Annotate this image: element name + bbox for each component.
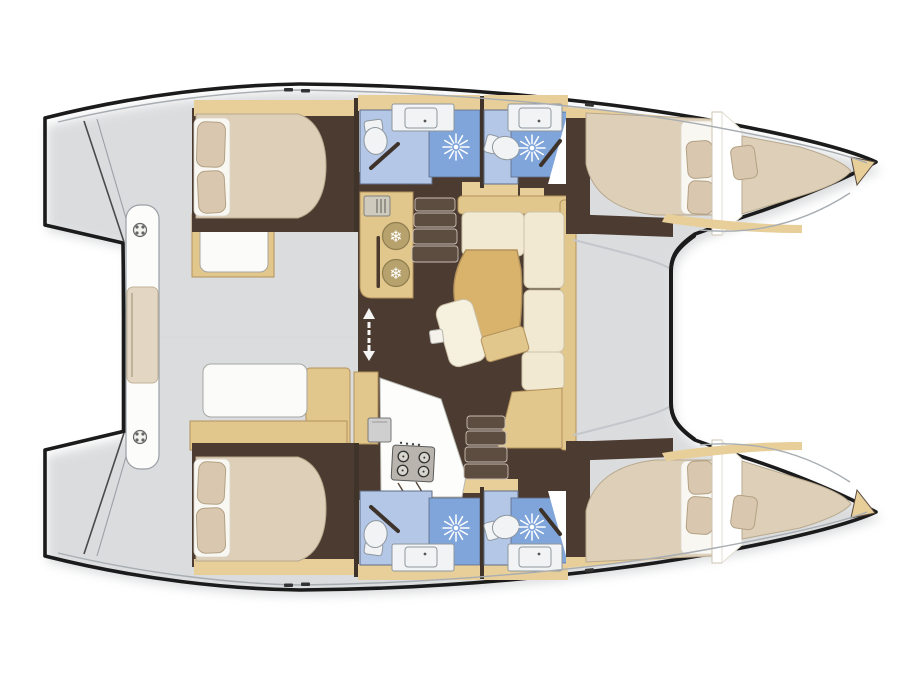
stove-icon (391, 441, 435, 482)
salon: ❄ ❄ (354, 172, 576, 500)
snowflake-icon: ❄ (389, 227, 402, 246)
locker-handle (377, 236, 381, 288)
companionway-steps-starboard (464, 416, 508, 479)
floor-hatch (429, 329, 444, 344)
cockpit-table-top (203, 364, 307, 417)
settee-back (458, 196, 572, 214)
galley-forward: ❄ ❄ (360, 192, 413, 298)
settee-cushion (522, 352, 564, 390)
cockpit-module-starboard (190, 364, 350, 450)
catamaran-floorplan: ❄ ❄ (0, 0, 900, 675)
settee-cushion (524, 290, 564, 352)
companionway-steps-port (412, 198, 458, 262)
stern-bench (123, 205, 159, 469)
settee-cushion (524, 212, 564, 288)
floorplan-svg: ❄ ❄ (0, 0, 900, 675)
snowflake-icon: ❄ (389, 264, 402, 283)
